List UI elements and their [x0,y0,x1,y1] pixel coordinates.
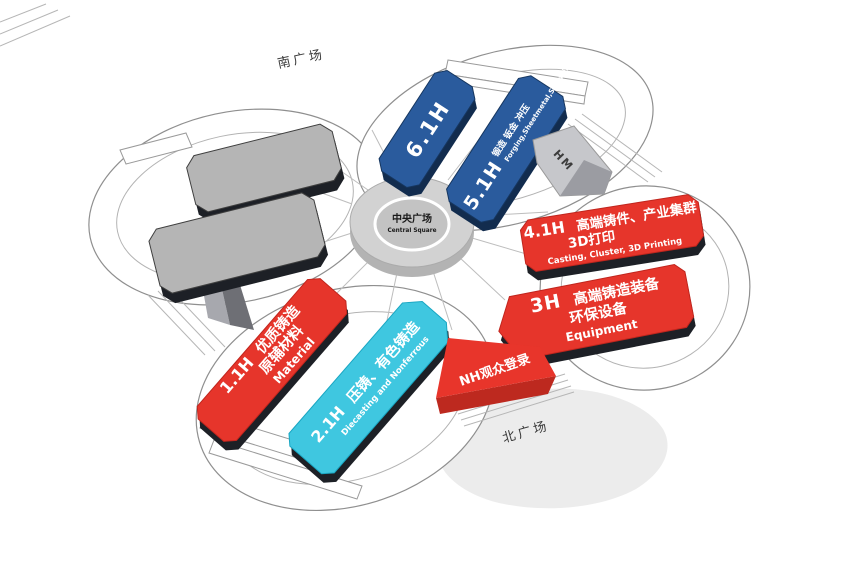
south-square-label: 南广场 [276,46,326,72]
expo-floor-map: 中央广场 Central Square 6.1H 5.1H 锻造 钣金 冲压 F… [0,0,865,576]
central-square-label-zh: 中央广场 [392,212,432,225]
floor-map-canvas: 中央广场 Central Square 6.1H 5.1H 锻造 钣金 冲压 F… [0,0,865,576]
central-square-label-en: Central Square [387,228,436,234]
